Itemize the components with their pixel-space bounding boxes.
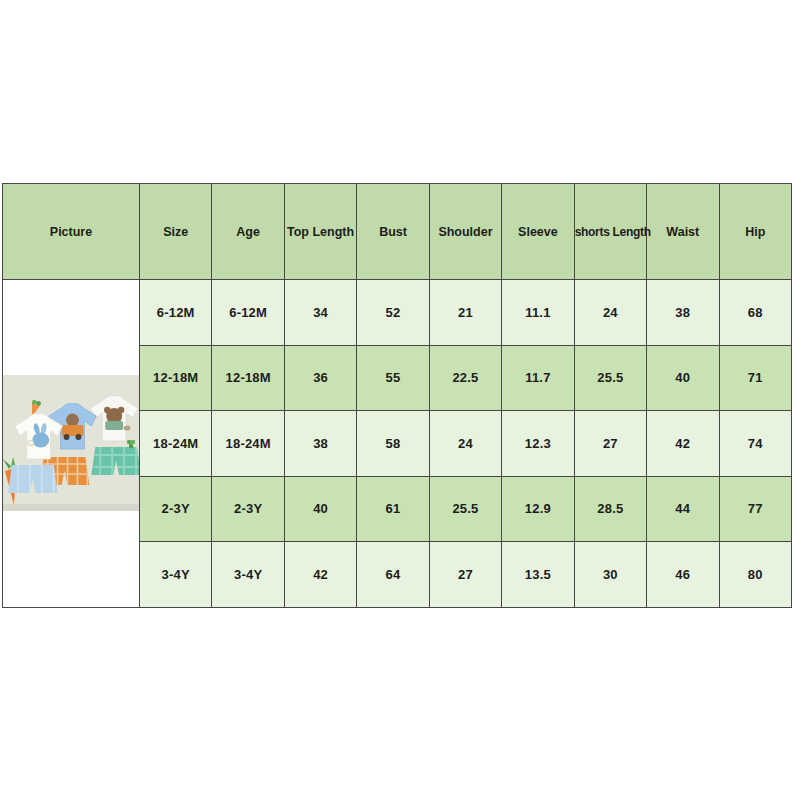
data-cell: 25.5 xyxy=(429,476,501,542)
data-cell: 58 xyxy=(357,411,429,477)
data-cell: 42 xyxy=(647,411,719,477)
column-header-hip: Hip xyxy=(719,184,792,280)
data-cell: 12-18M xyxy=(140,345,212,411)
data-cell: 12-18M xyxy=(212,345,284,411)
data-cell: 12.9 xyxy=(502,476,574,542)
data-cell: 28.5 xyxy=(574,476,646,542)
data-cell: 44 xyxy=(647,476,719,542)
data-cell: 2-3Y xyxy=(140,476,212,542)
toddler-outfits-illustration xyxy=(3,375,139,511)
column-header-waist: Waist xyxy=(647,184,719,280)
column-header-sleeve: Sleeve xyxy=(502,184,574,280)
data-cell: 24 xyxy=(429,411,501,477)
data-cell: 46 xyxy=(647,542,719,608)
data-cell: 40 xyxy=(647,345,719,411)
data-cell: 11.1 xyxy=(502,280,574,346)
data-cell: 25.5 xyxy=(574,345,646,411)
data-cell: 21 xyxy=(429,280,501,346)
data-cell: 36 xyxy=(284,345,356,411)
data-cell: 6-12M xyxy=(212,280,284,346)
data-cell: 38 xyxy=(647,280,719,346)
data-cell: 27 xyxy=(574,411,646,477)
header-row: Picture Size Age Top Length Bust Shoulde… xyxy=(3,184,792,280)
column-header-age: Age xyxy=(212,184,284,280)
data-cell: 38 xyxy=(284,411,356,477)
data-cell: 3-4Y xyxy=(140,542,212,608)
data-cell: 3-4Y xyxy=(212,542,284,608)
data-cell: 80 xyxy=(719,542,792,608)
column-header-shorts-length: shorts Length xyxy=(574,184,646,280)
data-cell: 18-24M xyxy=(212,411,284,477)
data-cell: 24 xyxy=(574,280,646,346)
column-header-shoulder: Shoulder xyxy=(429,184,501,280)
data-cell: 77 xyxy=(719,476,792,542)
data-cell: 18-24M xyxy=(140,411,212,477)
data-cell: 42 xyxy=(284,542,356,608)
size-chart: Picture Size Age Top Length Bust Shoulde… xyxy=(2,183,792,608)
data-cell: 40 xyxy=(284,476,356,542)
column-header-bust: Bust xyxy=(357,184,429,280)
data-cell: 11.7 xyxy=(502,345,574,411)
data-cell: 6-12M xyxy=(140,280,212,346)
data-cell: 13.5 xyxy=(502,542,574,608)
product-photo xyxy=(3,375,139,511)
picture-cell xyxy=(3,280,140,608)
nest-icon xyxy=(124,426,131,431)
data-cell: 52 xyxy=(357,280,429,346)
data-cell: 12.3 xyxy=(502,411,574,477)
data-cell: 64 xyxy=(357,542,429,608)
data-cell: 61 xyxy=(357,476,429,542)
size-chart-table: Picture Size Age Top Length Bust Shoulde… xyxy=(2,183,792,608)
column-header-top-length: Top Length xyxy=(284,184,356,280)
table-row-6-12m: 6-12M 6-12M 34 52 21 11.1 24 38 68 xyxy=(3,280,792,346)
data-cell: 71 xyxy=(719,345,792,411)
column-header-picture: Picture xyxy=(3,184,140,280)
data-cell: 34 xyxy=(284,280,356,346)
data-cell: 22.5 xyxy=(429,345,501,411)
data-cell: 74 xyxy=(719,411,792,477)
data-cell: 68 xyxy=(719,280,792,346)
data-cell: 2-3Y xyxy=(212,476,284,542)
data-cell: 30 xyxy=(574,542,646,608)
column-header-size: Size xyxy=(140,184,212,280)
data-cell: 55 xyxy=(357,345,429,411)
data-cell: 27 xyxy=(429,542,501,608)
